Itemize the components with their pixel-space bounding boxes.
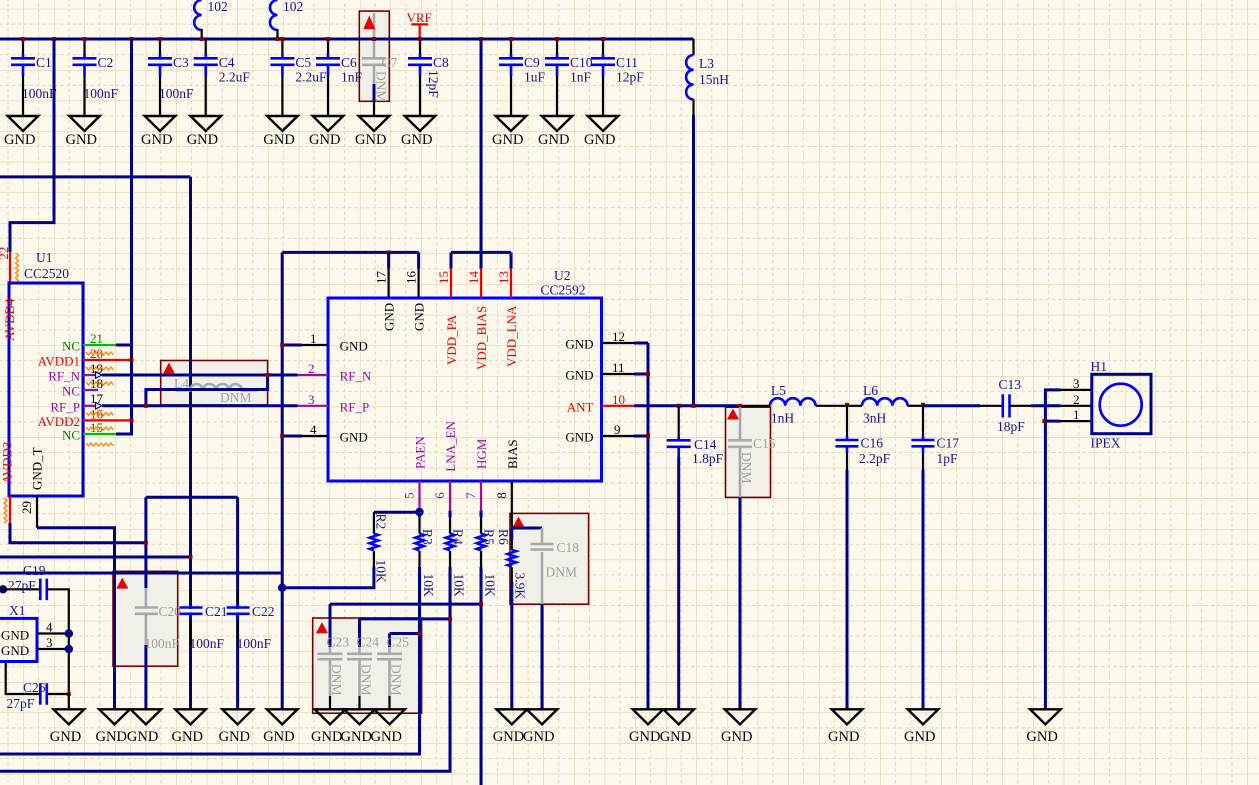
svg-text:DNM: DNM: [546, 565, 578, 580]
svg-text:14: 14: [466, 271, 481, 285]
svg-text:100nF: 100nF: [22, 86, 57, 101]
svg-text:C14: C14: [694, 437, 717, 452]
svg-text:LNA_EN: LNA_EN: [443, 421, 458, 472]
svg-text:C15: C15: [753, 436, 776, 451]
svg-text:29: 29: [19, 501, 34, 514]
svg-text:21: 21: [90, 331, 103, 346]
svg-text:2.2uF: 2.2uF: [219, 70, 251, 85]
svg-text:L3: L3: [699, 56, 714, 71]
svg-text:7: 7: [463, 492, 478, 499]
svg-text:16: 16: [404, 271, 419, 285]
svg-text:C1: C1: [36, 55, 52, 70]
svg-text:RF_N: RF_N: [340, 369, 372, 384]
svg-text:100nF: 100nF: [190, 636, 225, 651]
svg-text:1nH: 1nH: [771, 411, 795, 426]
svg-text:GND: GND: [565, 368, 593, 383]
svg-text:VRF: VRF: [407, 10, 432, 25]
svg-text:GND: GND: [584, 132, 615, 148]
svg-text:2.2pF: 2.2pF: [859, 451, 891, 466]
svg-text:DNM: DNM: [374, 71, 389, 103]
svg-text:CC2592: CC2592: [541, 283, 586, 298]
svg-text:R4: R4: [451, 529, 466, 545]
svg-text:NC: NC: [62, 339, 80, 354]
svg-text:C8: C8: [433, 55, 449, 70]
svg-text:GND: GND: [1026, 729, 1057, 745]
svg-text:R6: R6: [496, 529, 511, 545]
svg-text:3: 3: [46, 635, 53, 650]
svg-text:R3: R3: [420, 529, 435, 545]
svg-text:10K: 10K: [483, 574, 498, 598]
svg-text:CC2520: CC2520: [24, 266, 69, 281]
svg-text:C26: C26: [23, 680, 46, 695]
svg-text:GND: GND: [412, 303, 427, 331]
svg-text:15nH: 15nH: [699, 72, 729, 87]
svg-text:HGM: HGM: [474, 438, 489, 469]
svg-text:C20: C20: [159, 604, 182, 619]
svg-text:C24: C24: [357, 635, 380, 650]
svg-text:12pF: 12pF: [426, 70, 441, 98]
svg-text:4: 4: [46, 620, 53, 635]
svg-text:15: 15: [436, 271, 451, 284]
svg-text:4: 4: [310, 422, 317, 437]
svg-text:2: 2: [308, 361, 315, 376]
svg-text:GND: GND: [371, 729, 402, 745]
svg-text:RF_P: RF_P: [340, 400, 370, 415]
svg-text:R2: R2: [374, 514, 389, 530]
svg-text:27pF: 27pF: [8, 578, 36, 593]
svg-text:10K: 10K: [374, 560, 389, 584]
svg-text:GND: GND: [538, 132, 569, 148]
svg-text:GND: GND: [340, 430, 368, 445]
svg-text:GND: GND: [309, 132, 340, 148]
svg-text:1nF: 1nF: [570, 70, 592, 85]
svg-text:C16: C16: [861, 436, 884, 451]
svg-text:1uF: 1uF: [524, 70, 546, 85]
svg-text:12pF: 12pF: [616, 70, 644, 85]
svg-text:R5: R5: [482, 529, 497, 545]
svg-text:GND: GND: [382, 303, 397, 331]
svg-text:IPEX: IPEX: [1091, 436, 1121, 451]
svg-text:L6: L6: [863, 383, 878, 398]
svg-text:C6: C6: [341, 55, 357, 70]
svg-text:1.8pF: 1.8pF: [692, 451, 724, 466]
svg-text:X1: X1: [9, 603, 26, 618]
svg-text:AVDD3: AVDD3: [0, 442, 15, 484]
svg-text:VDD_BIAS: VDD_BIAS: [474, 306, 489, 370]
svg-text:NC: NC: [62, 384, 80, 399]
svg-text:8: 8: [494, 492, 509, 499]
svg-text:3nH: 3nH: [863, 411, 887, 426]
svg-text:1: 1: [1073, 407, 1080, 422]
svg-text:2: 2: [1073, 392, 1080, 407]
svg-text:GND: GND: [565, 337, 593, 352]
svg-text:RF_P: RF_P: [50, 400, 80, 415]
svg-text:C17: C17: [937, 436, 960, 451]
svg-text:C4: C4: [219, 55, 235, 70]
svg-text:U2: U2: [554, 268, 571, 283]
svg-text:AVDD4: AVDD4: [2, 298, 17, 341]
svg-text:6: 6: [432, 492, 447, 499]
svg-text:100nF: 100nF: [84, 86, 119, 101]
svg-text:102: 102: [283, 0, 303, 14]
svg-text:DNM: DNM: [220, 390, 252, 405]
svg-text:AVDD1: AVDD1: [38, 354, 80, 369]
svg-text:5: 5: [402, 492, 417, 499]
svg-text:3: 3: [308, 392, 315, 407]
svg-text:GND: GND: [219, 729, 250, 745]
svg-text:C2: C2: [98, 55, 114, 70]
svg-text:GND: GND: [4, 132, 35, 148]
svg-text:U1: U1: [36, 250, 53, 265]
svg-text:C5: C5: [295, 55, 311, 70]
svg-text:C3: C3: [173, 55, 189, 70]
svg-text:GND: GND: [401, 132, 432, 148]
svg-text:GND: GND: [127, 729, 158, 745]
svg-text:18pF: 18pF: [997, 419, 1025, 434]
svg-text:VDD_LNA: VDD_LNA: [504, 305, 519, 367]
svg-text:C25: C25: [387, 635, 410, 650]
svg-text:12: 12: [612, 329, 625, 344]
svg-text:10K: 10K: [452, 574, 467, 598]
svg-text:GND: GND: [828, 729, 859, 745]
svg-text:17: 17: [90, 391, 104, 406]
svg-text:C23: C23: [327, 635, 350, 650]
svg-text:DNM: DNM: [329, 664, 344, 696]
svg-text:1nF: 1nF: [341, 70, 363, 85]
svg-text:RF_N: RF_N: [48, 369, 80, 384]
svg-text:GND: GND: [721, 729, 752, 745]
svg-text:DNM: DNM: [359, 664, 374, 696]
svg-text:GND_T: GND_T: [30, 447, 45, 490]
svg-text:GND: GND: [341, 729, 372, 745]
svg-text:GND: GND: [263, 132, 294, 148]
svg-text:C18: C18: [557, 540, 580, 555]
svg-text:NC: NC: [62, 428, 80, 443]
svg-text:PAEN: PAEN: [413, 436, 428, 469]
svg-text:L5: L5: [771, 383, 786, 398]
svg-text:GND: GND: [187, 132, 218, 148]
svg-text:2.2uF: 2.2uF: [295, 70, 327, 85]
svg-text:10K: 10K: [421, 574, 436, 598]
svg-text:GND: GND: [340, 339, 368, 354]
svg-text:C10: C10: [570, 55, 593, 70]
svg-text:GND: GND: [492, 132, 523, 148]
svg-text:3.9K: 3.9K: [513, 573, 528, 600]
svg-text:GND: GND: [172, 729, 203, 745]
svg-text:GND: GND: [311, 729, 342, 745]
svg-text:BIAS: BIAS: [505, 439, 520, 469]
svg-text:GND: GND: [355, 132, 386, 148]
svg-text:GND: GND: [96, 729, 127, 745]
svg-text:100nF: 100nF: [145, 636, 180, 651]
svg-text:17: 17: [374, 271, 389, 285]
svg-text:1pF: 1pF: [937, 451, 959, 466]
svg-text:GND: GND: [141, 132, 172, 148]
svg-text:100nF: 100nF: [159, 86, 194, 101]
svg-text:GND: GND: [493, 729, 524, 745]
svg-text:GND: GND: [1, 643, 29, 658]
svg-text:GND: GND: [1, 628, 29, 643]
svg-text:9: 9: [614, 422, 621, 437]
svg-text:DNM: DNM: [739, 452, 754, 484]
svg-text:11: 11: [612, 360, 625, 375]
svg-text:22: 22: [0, 247, 11, 260]
svg-text:GND: GND: [50, 729, 81, 745]
svg-text:102: 102: [208, 0, 228, 14]
svg-text:27pF: 27pF: [7, 696, 35, 711]
svg-text:GND: GND: [904, 729, 935, 745]
svg-text:C21: C21: [205, 604, 228, 619]
svg-text:C22: C22: [252, 604, 275, 619]
svg-text:10: 10: [612, 392, 625, 407]
svg-text:GND: GND: [660, 729, 691, 745]
svg-text:C19: C19: [23, 563, 46, 578]
svg-text:GND: GND: [565, 430, 593, 445]
svg-text:C9: C9: [524, 55, 540, 70]
svg-text:C11: C11: [616, 55, 638, 70]
svg-text:GND: GND: [263, 729, 294, 745]
svg-text:C13: C13: [999, 377, 1022, 392]
svg-text:GND: GND: [66, 132, 97, 148]
svg-text:DNM: DNM: [389, 664, 404, 696]
svg-text:GND: GND: [523, 729, 554, 745]
svg-text:1: 1: [310, 331, 317, 346]
svg-text:ANT: ANT: [567, 400, 594, 415]
svg-text:3: 3: [1073, 376, 1080, 391]
svg-text:H1: H1: [1091, 359, 1108, 374]
svg-text:C7: C7: [382, 55, 398, 70]
svg-text:13: 13: [496, 271, 511, 284]
svg-text:GND: GND: [629, 729, 660, 745]
svg-text:100nF: 100nF: [237, 636, 272, 651]
svg-text:VDD_PA: VDD_PA: [444, 314, 459, 365]
